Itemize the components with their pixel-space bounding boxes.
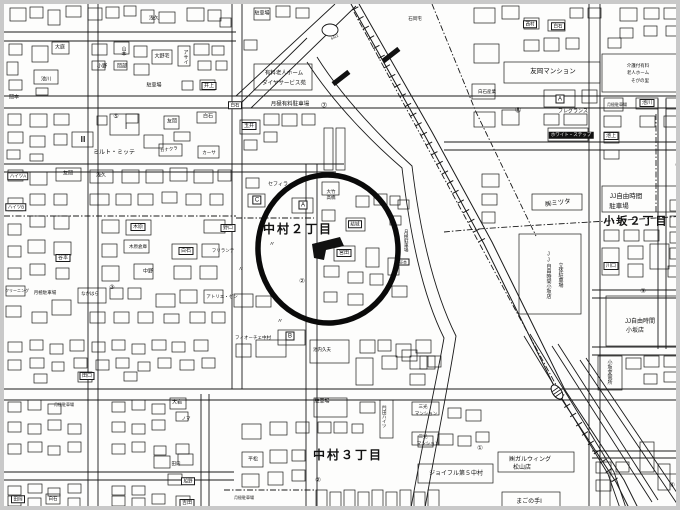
annotation-overlay [4,4,680,510]
annotation-circle [253,170,403,327]
map-frame: 中村２丁目中村３丁目小坂２丁目浅久大庭山本小野岡部池川岡本大野宅アサイ駐車場井上… [0,0,680,510]
